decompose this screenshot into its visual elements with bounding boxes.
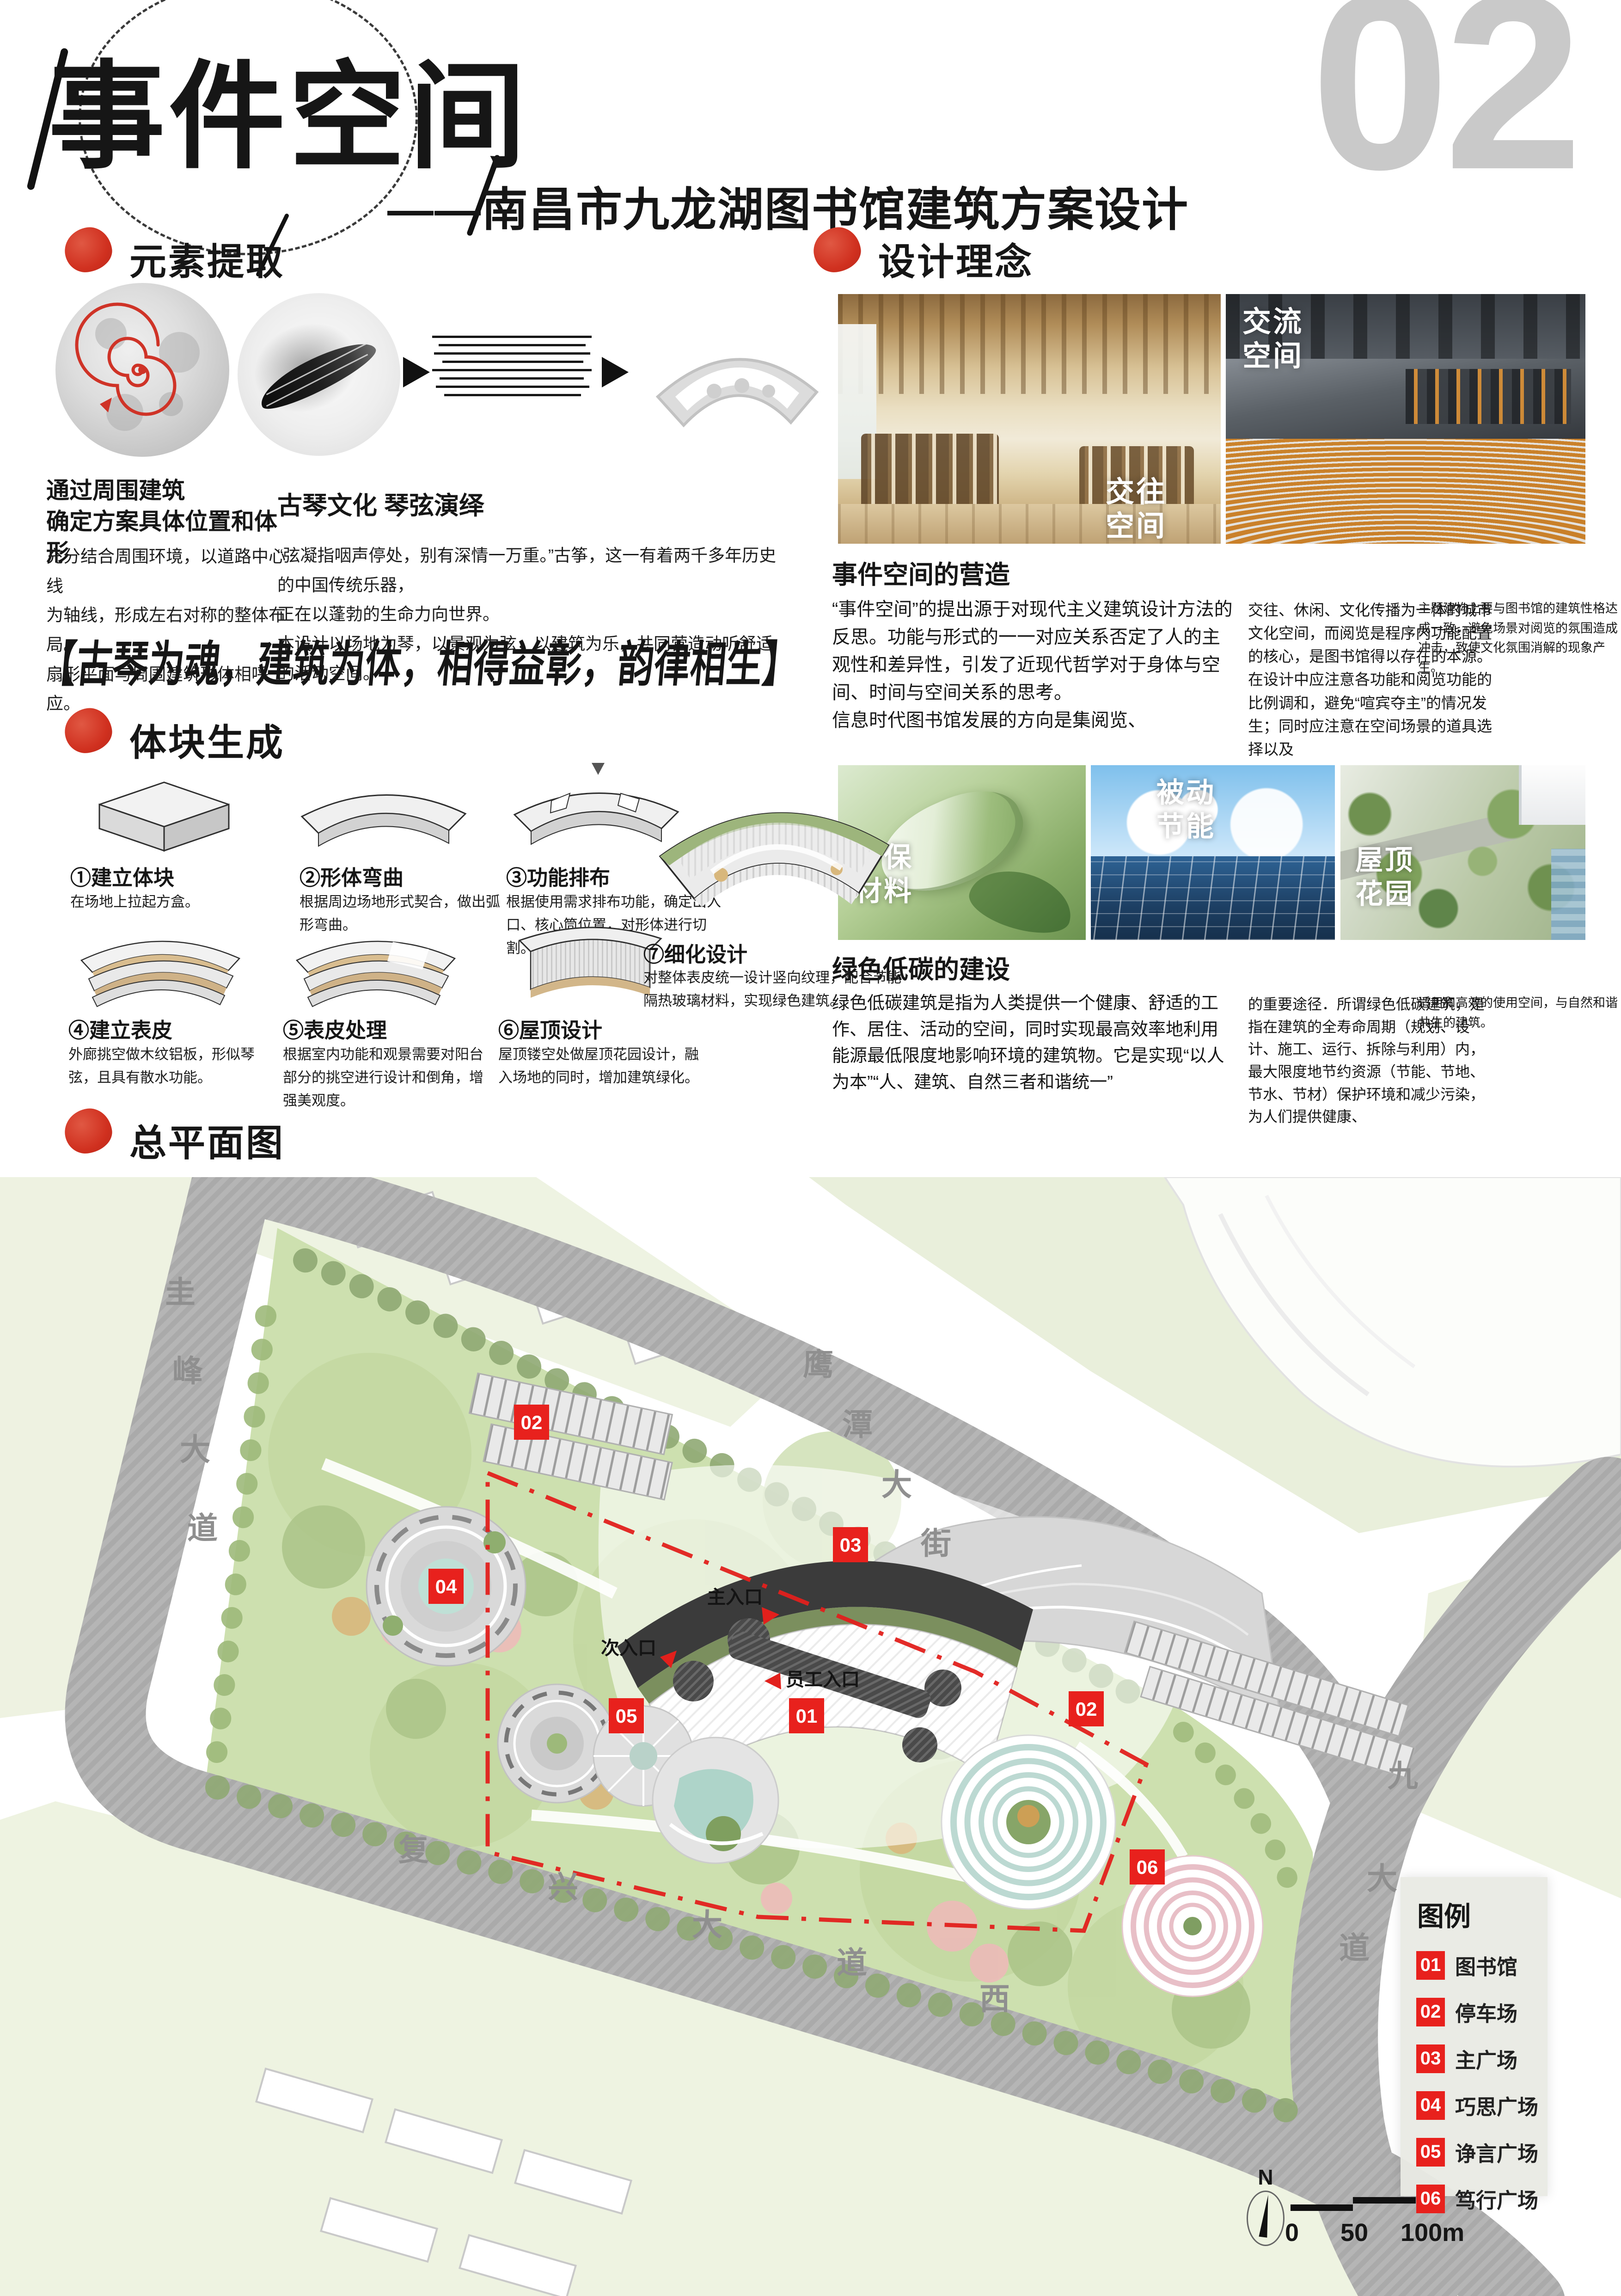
scale-50: 50	[1340, 2218, 1368, 2247]
road-fuxing-char: 复	[398, 1833, 429, 1867]
building-corner	[1519, 765, 1585, 825]
road-jiulong-char: 九	[1388, 1759, 1418, 1793]
step1-desc: 在场地上拉起方盒。	[70, 890, 269, 914]
massing-diagram-4	[61, 913, 260, 1013]
north-label: N	[1238, 2165, 1293, 2190]
section-title-concept: 设计理念	[878, 232, 1034, 286]
step7-label: ⑦细化设计	[643, 938, 747, 968]
road-fuxing-char: 兴	[548, 1870, 578, 1904]
compass-icon	[1247, 2191, 1285, 2246]
marker-03: 03	[840, 1534, 862, 1556]
tiered-seating	[1226, 439, 1585, 544]
page-number: 02	[1311, 0, 1578, 207]
road-yingtan-char: 潭	[842, 1407, 873, 1442]
bookshelf	[861, 434, 999, 503]
step5-desc: 根据室内功能和观景需要对阳台部分的挑空进行设计和倒角，增强美观度。	[283, 1043, 486, 1113]
photo1-label: 交往 空间	[1106, 475, 1167, 544]
glass-facade	[1551, 849, 1585, 940]
bookshelf	[1406, 369, 1571, 424]
guqin-ink-image	[238, 293, 400, 456]
step4-desc: 外廊挑空做木纹铝板，形似琴弦，且具有散水功能。	[68, 1043, 272, 1089]
road-guifeng-char: 大	[180, 1432, 210, 1467]
road-fuxing-char: 西	[979, 1982, 1010, 2016]
step6-desc: 屋顶镂空处做屋顶花园设计，融入场地的同时，增加建筑绿化。	[498, 1043, 706, 1089]
string-line	[442, 361, 583, 363]
staff-entrance-label: 员工入口	[786, 1670, 860, 1690]
img2-label: 被动 节能	[1156, 776, 1216, 843]
presentation-board: 事件空间 ——南昌市九龙湖图书馆建筑方案设计 02 元素提取	[0, 0, 1621, 2296]
subheading-event-space: 事件空间的营造	[832, 554, 1010, 591]
legend-num: 01	[1416, 1951, 1445, 1980]
step5-label: ⑤表皮处理	[283, 1013, 387, 1044]
compass-needle	[1259, 2194, 1272, 2238]
massing-diagram-2	[284, 762, 483, 861]
legend-item: 05 诤言广场	[1416, 2137, 1548, 2167]
road-fuxing-char: 大	[692, 1908, 722, 1942]
legend-item: 06 笃行广场	[1416, 2184, 1548, 2214]
img3-label: 屋顶 花园	[1355, 843, 1414, 911]
massing-diagram-7	[642, 758, 901, 913]
marker-02a: 02	[521, 1412, 543, 1433]
scale-100: 100m	[1401, 2218, 1464, 2247]
string-line	[434, 352, 590, 355]
seal-icon	[62, 1105, 115, 1156]
road-fuxing-char: 道	[837, 1946, 867, 1980]
legend-item: 02 停车场	[1416, 1997, 1548, 2027]
step6-label: ⑥屋顶设计	[498, 1013, 602, 1044]
road-jiulong-char: 道	[1339, 1931, 1370, 1965]
marker-04: 04	[435, 1576, 457, 1597]
strings-diagram	[432, 336, 594, 402]
step4-label: ④建立表皮	[68, 1013, 172, 1044]
concept-text-col1: “事件空间”的提出源于对现代主义建筑设计方法的反思。功能与形式的一一对应关系否定…	[832, 595, 1235, 734]
wood-slats	[838, 294, 1221, 394]
legend-title: 图例	[1417, 1895, 1548, 1934]
massing-diagram-1	[65, 762, 263, 861]
caption-guqin-title: 古琴文化 琴弦演绎	[277, 489, 484, 522]
site-plan: 主入口 次入口 员工入口 01 02 03 04 05 02 06 圭 峰 大 …	[0, 1177, 1621, 2296]
legend-item: 03 主广场	[1416, 2044, 1548, 2074]
scale-0: 0	[1285, 2218, 1299, 2247]
marker-02b: 02	[1076, 1698, 1097, 1720]
string-line	[444, 394, 581, 396]
marker-05: 05	[616, 1705, 637, 1727]
step7-desc: 对整体表皮统一设计竖向纹理，配合节能隔热玻璃材料，实现绿色建筑。	[643, 966, 911, 1013]
spiral-plaza	[942, 1735, 1115, 1909]
legend-label: 巧思广场	[1455, 2090, 1538, 2120]
legend-item: 01 图书馆	[1416, 1950, 1548, 1980]
string-line	[436, 386, 589, 388]
road-yingtan-char: 街	[920, 1526, 951, 1560]
arrow-right-icon	[403, 357, 430, 387]
section-title-extract: 元素提取	[129, 232, 285, 286]
scale-segment	[1291, 2204, 1353, 2211]
secondary-entrance-label: 次入口	[601, 1638, 656, 1658]
arrow-right-icon	[602, 357, 629, 387]
string-line	[440, 377, 584, 380]
string-line	[432, 369, 592, 371]
road-yingtan-char: 大	[881, 1467, 912, 1502]
road-yingtan-char: 鹰	[803, 1347, 833, 1381]
plan-legend: 图例 01 图书馆 02 停车场 03 主广场 04 巧思广场 05 诤言广场 …	[1401, 1877, 1548, 2196]
seal-icon	[62, 224, 115, 275]
road-guifeng-char: 道	[187, 1511, 218, 1545]
road-guifeng-char: 圭	[165, 1275, 196, 1309]
building-footprint-icon	[645, 318, 830, 441]
legend-num: 06	[1416, 2185, 1445, 2213]
step1-label: ①建立体块	[70, 861, 174, 891]
legend-label: 诤言广场	[1455, 2137, 1538, 2167]
solar-panels	[1091, 856, 1335, 940]
marker-06: 06	[1137, 1856, 1158, 1878]
legend-label: 主广场	[1455, 2044, 1517, 2074]
photo2-label: 交流 空间	[1242, 305, 1303, 374]
legend-item: 04 巧思广场	[1416, 2090, 1548, 2120]
site-aerial-image	[55, 283, 229, 457]
legend-label: 图书馆	[1455, 1950, 1517, 1980]
step2-label: ②形体弯曲	[300, 861, 404, 891]
legend-num: 04	[1416, 2091, 1445, 2120]
concept-text-col3: 主题建构上要与图书馆的建筑性格达成一致，避免场景对阅览的氛围造成冲击，致使文化氛…	[1418, 599, 1621, 678]
board-title: 事件空间	[49, 59, 529, 176]
legend-label: 笃行广场	[1455, 2184, 1538, 2214]
string-line	[439, 344, 586, 346]
marker-01: 01	[796, 1705, 818, 1727]
legend-num: 03	[1416, 2044, 1445, 2073]
road-jiulong-char: 大	[1367, 1861, 1397, 1896]
step3-label: ③功能排布	[506, 861, 610, 891]
scale-segment	[1353, 2197, 1416, 2204]
section-title-plan: 总平面图	[129, 1113, 285, 1167]
legend-label: 停车场	[1455, 1997, 1517, 2027]
road-guifeng-char: 峰	[172, 1354, 203, 1388]
string-line	[432, 336, 592, 338]
main-entrance-label: 主入口	[707, 1587, 763, 1608]
section-title-massing: 体块生成	[129, 713, 285, 767]
legend-num: 02	[1416, 1998, 1445, 2026]
red-spiral-icon	[55, 283, 229, 457]
massing-diagram-5	[276, 913, 475, 1013]
calligraphy-quote: 【古琴为魂，建筑为体，相得益彰，韵律相生】	[38, 625, 802, 695]
green-text-col3: 适用和高效的使用空间，与自然和谐共生的建筑。	[1418, 993, 1621, 1032]
legend-num: 05	[1416, 2138, 1445, 2167]
board-subtitle: ——南昌市九龙湖图书馆建筑方案设计	[387, 172, 1189, 239]
